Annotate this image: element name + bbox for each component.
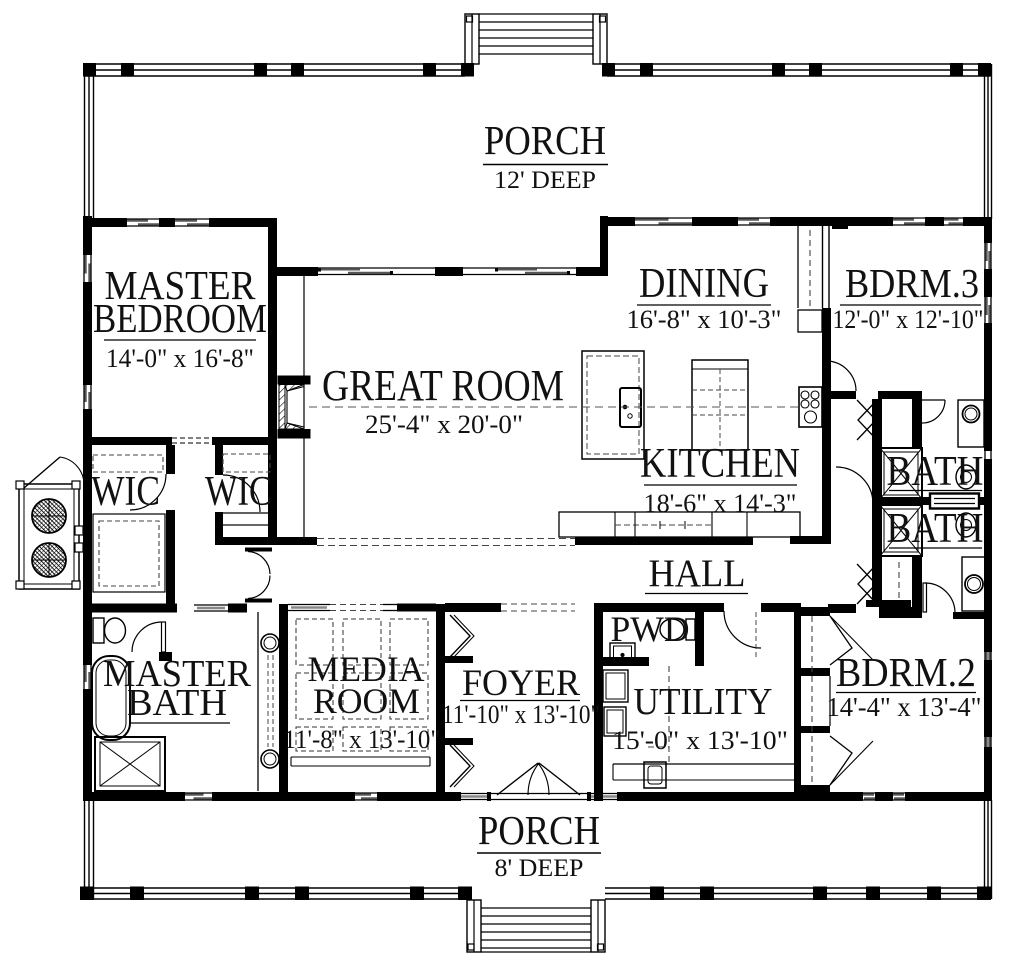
svg-text:WIC: WIC [91, 469, 160, 515]
svg-text:PORCH: PORCH [484, 117, 606, 163]
svg-text:ROOM: ROOM [313, 681, 420, 721]
svg-text:GREAT ROOM: GREAT ROOM [322, 361, 564, 410]
svg-text:12'-0" x 12'-10": 12'-0" x 12'-10" [833, 305, 984, 334]
svg-text:BATH: BATH [887, 506, 984, 552]
svg-text:8' DEEP: 8' DEEP [495, 855, 584, 882]
svg-text:14'-0" x 16'-8": 14'-0" x 16'-8" [106, 343, 254, 373]
svg-text:14'-4" x 13'-4": 14'-4" x 13'-4" [827, 692, 982, 722]
svg-text:KITCHEN: KITCHEN [640, 441, 800, 487]
svg-text:11'-10" x 13'-10": 11'-10" x 13'-10" [442, 700, 600, 729]
svg-text:BEDROOM: BEDROOM [93, 295, 267, 341]
svg-text:FOYER: FOYER [462, 663, 580, 704]
svg-text:WIC: WIC [205, 469, 272, 515]
svg-text:DINING: DINING [639, 261, 769, 307]
svg-text:BATH: BATH [127, 682, 227, 724]
svg-text:12' DEEP: 12' DEEP [494, 167, 596, 194]
svg-text:BDRM.3: BDRM.3 [845, 260, 979, 306]
svg-text:15'-0" x 13'-10": 15'-0" x 13'-10" [612, 726, 788, 755]
svg-text:16'-8" x 10'-3": 16'-8" x 10'-3" [627, 305, 782, 334]
svg-text:BDRM.2: BDRM.2 [836, 649, 976, 695]
svg-text:25'-4" x 20'-0": 25'-4" x 20'-0" [365, 410, 523, 439]
svg-text:PORCH: PORCH [478, 807, 600, 853]
svg-text:PWD: PWD [611, 609, 690, 649]
svg-text:11'-8" x 13'-10": 11'-8" x 13'-10" [284, 725, 441, 754]
svg-text:UTILITY: UTILITY [634, 681, 773, 723]
svg-text:18'-6" x 14'-3": 18'-6" x 14'-3" [644, 489, 797, 518]
svg-text:BATH: BATH [887, 449, 984, 495]
svg-text:HALL: HALL [649, 552, 746, 595]
